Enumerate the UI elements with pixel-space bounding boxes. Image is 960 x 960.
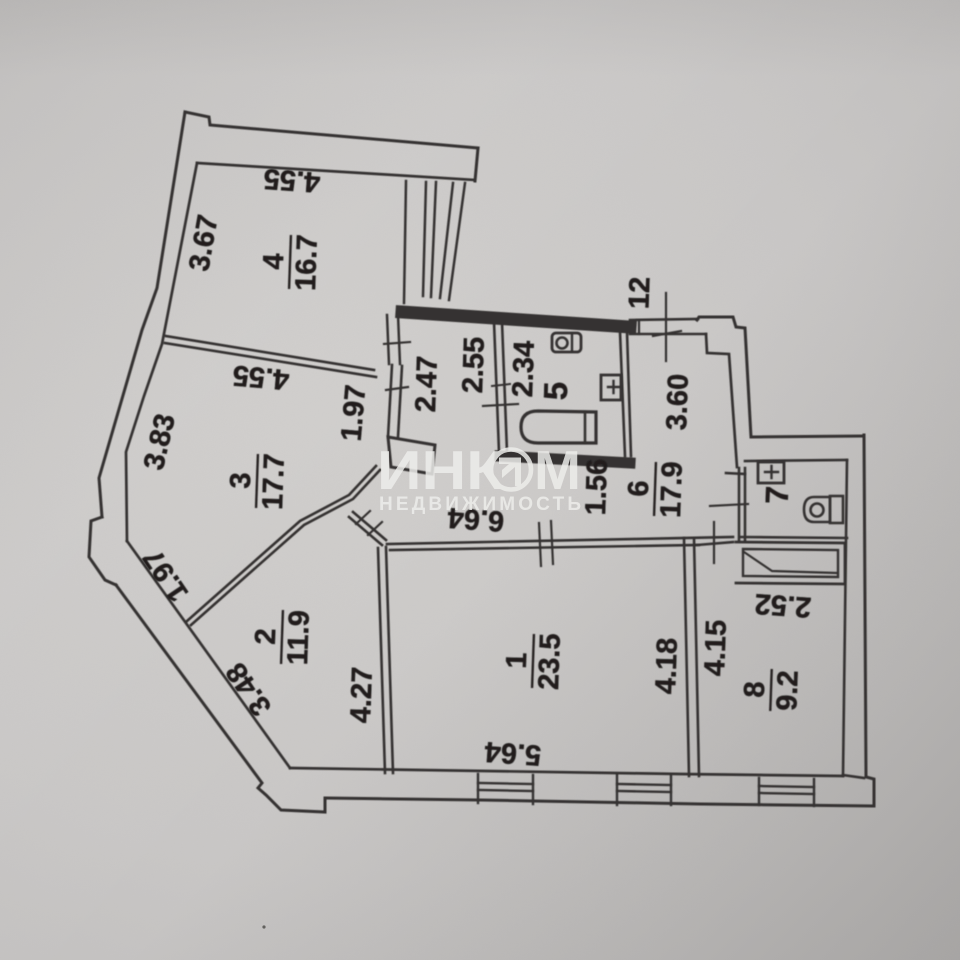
svg-text:4.18: 4.18 xyxy=(650,637,684,695)
svg-text:4.55: 4.55 xyxy=(263,162,322,198)
svg-text:1.97: 1.97 xyxy=(336,383,373,442)
svg-text:11.9: 11.9 xyxy=(282,610,316,666)
svg-text:3.60: 3.60 xyxy=(661,373,695,431)
svg-text:2: 2 xyxy=(250,628,283,645)
svg-text:9.2: 9.2 xyxy=(771,670,804,711)
svg-text:4: 4 xyxy=(258,253,291,270)
svg-text:23.5: 23.5 xyxy=(533,633,567,691)
svg-text:8: 8 xyxy=(739,681,772,698)
svg-text:2.52: 2.52 xyxy=(754,587,813,623)
svg-text:17.9: 17.9 xyxy=(655,461,689,519)
svg-text:ИНК: ИНК xyxy=(377,439,504,501)
svg-text:М: М xyxy=(534,439,581,501)
svg-text:6: 6 xyxy=(623,480,656,497)
svg-text:2.47: 2.47 xyxy=(410,355,444,413)
svg-text:1: 1 xyxy=(501,652,534,669)
svg-text:4.27: 4.27 xyxy=(345,666,379,724)
svg-text:17.7: 17.7 xyxy=(257,453,291,511)
svg-text:12: 12 xyxy=(623,276,656,309)
svg-text:2.55: 2.55 xyxy=(457,336,491,394)
svg-text:3: 3 xyxy=(225,472,258,489)
svg-text:1.56: 1.56 xyxy=(580,458,614,516)
svg-text:16.7: 16.7 xyxy=(290,234,324,292)
svg-text:4.15: 4.15 xyxy=(699,619,733,677)
svg-text:5.64: 5.64 xyxy=(484,735,543,771)
svg-text:4.55: 4.55 xyxy=(231,359,290,396)
svg-text:5: 5 xyxy=(537,381,575,401)
svg-text:2.34: 2.34 xyxy=(507,340,541,398)
svg-text:7: 7 xyxy=(759,485,796,504)
